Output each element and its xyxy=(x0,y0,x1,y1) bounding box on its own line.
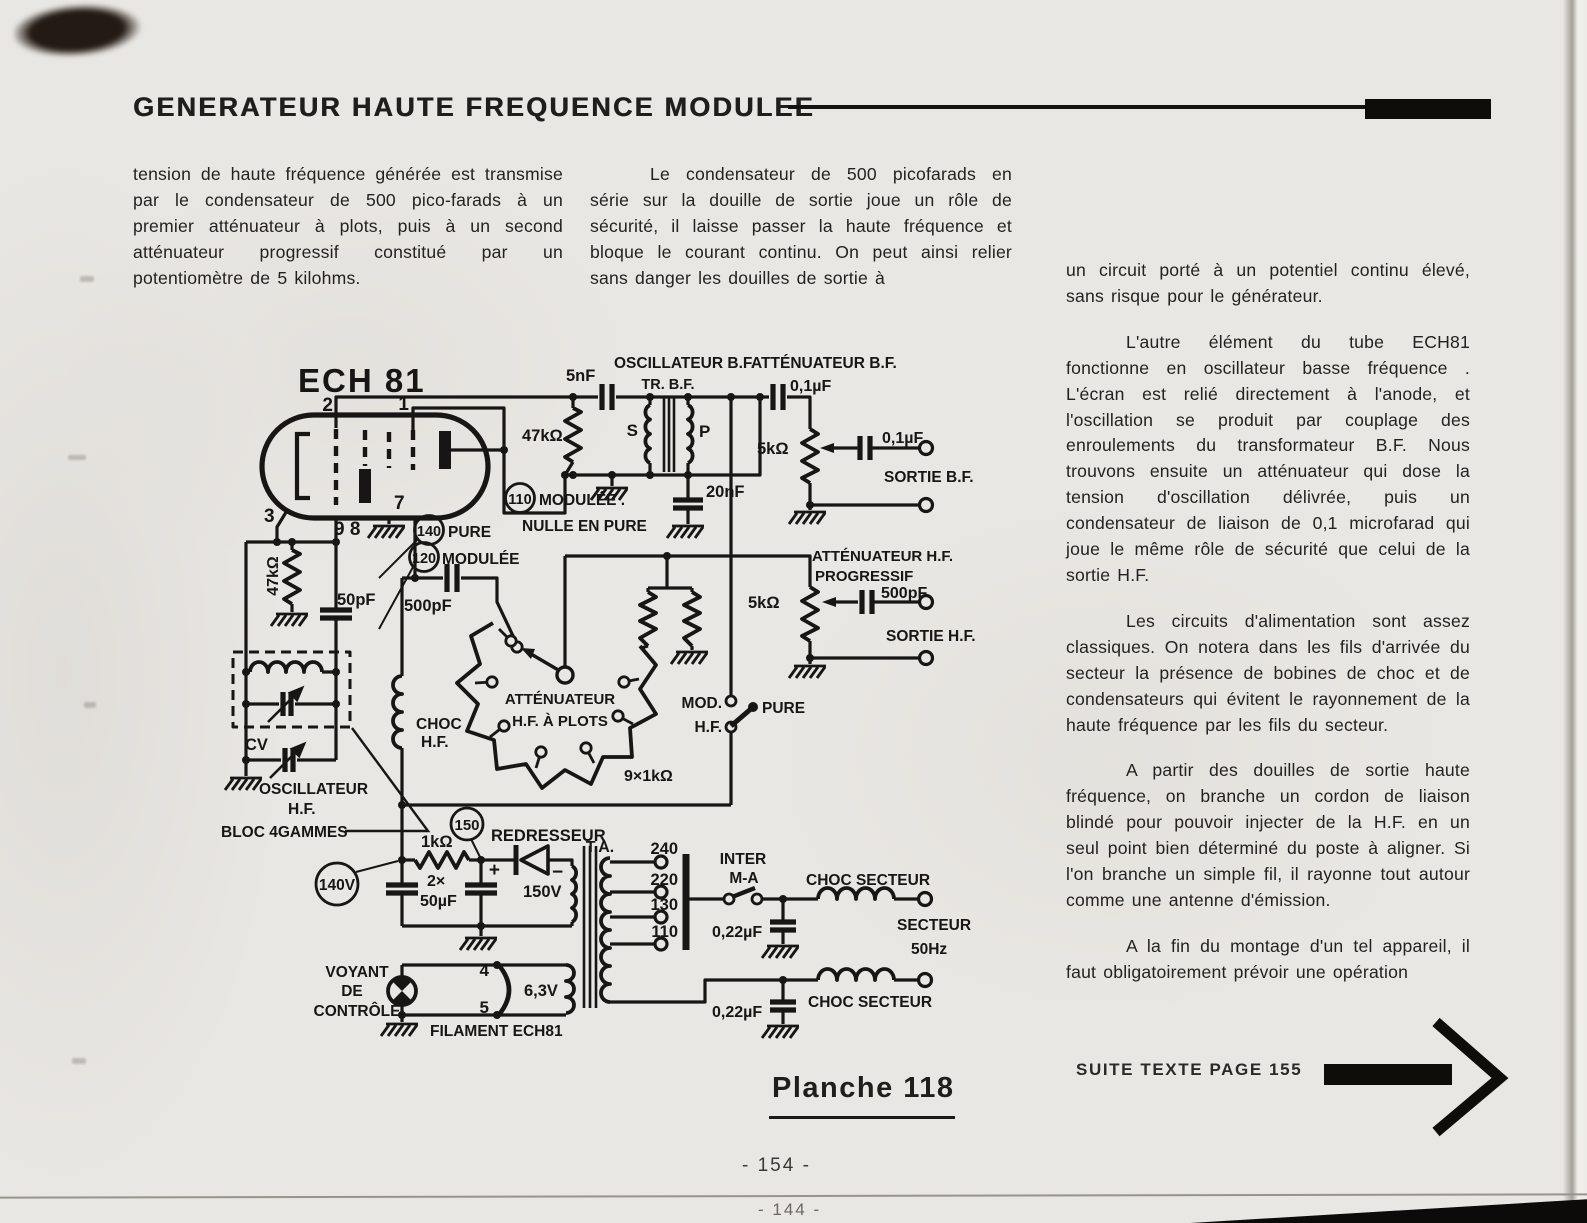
label-500pf-a: 500pF xyxy=(404,597,452,615)
label-osc-bf: OSCILLATEUR B.F. xyxy=(614,355,755,372)
label-pin5: 5 xyxy=(480,998,489,1017)
rectifier-diode xyxy=(521,846,548,874)
label-att-plots-1: ATTÉNUATEUR xyxy=(505,691,615,708)
filament-bracket xyxy=(497,963,509,1017)
label-pure: PURE xyxy=(762,700,805,717)
page-number: - 154 - xyxy=(742,1155,811,1177)
label-50pf: 50pF xyxy=(337,591,376,609)
label-sortie-bf: SORTIE B.F. xyxy=(884,469,974,486)
label-tap-110: 110 xyxy=(651,923,678,941)
label-140v: 140V xyxy=(319,877,356,894)
scanned-magazine-page: GENERATEUR HAUTE FREQUENCE MODULEE tensi… xyxy=(0,0,1587,1223)
mod-pure-switch xyxy=(726,696,758,732)
label-ma: M-A xyxy=(729,870,758,887)
resistor-47k-bf xyxy=(565,408,581,462)
figure-caption: Planche 118 xyxy=(772,1072,955,1105)
label-500pf-b: 500pF xyxy=(881,585,927,602)
choke-mains-2 xyxy=(818,969,894,980)
label-110a: MODULÉE . xyxy=(539,492,625,509)
label-tap-240: 240 xyxy=(650,840,678,858)
label-5k-hf: 5kΩ xyxy=(748,594,780,612)
label-pin98: 9 8 xyxy=(334,519,360,540)
label-att-hf-2: PROGRESSIF xyxy=(815,568,913,585)
tube-ech81 xyxy=(262,415,488,518)
caption-underline xyxy=(769,1116,955,1119)
label-9x1k: 9×1kΩ xyxy=(624,768,673,785)
label-150v: 150V xyxy=(523,883,562,901)
label-1k: 1kΩ xyxy=(421,833,453,851)
transformer-bf-primary xyxy=(688,405,693,463)
label-inter: INTER xyxy=(720,851,767,868)
page-number-overleaf: - 144 - xyxy=(758,1200,821,1220)
bf-pot-arrow xyxy=(820,443,834,453)
choke-hf xyxy=(393,676,402,748)
transformer-mains-winding xyxy=(601,858,610,1002)
transformer-6v3-winding xyxy=(566,965,574,1013)
label-pin2: 2 xyxy=(322,395,333,416)
label-trbf: TR. B.F. xyxy=(641,377,694,393)
label-2x: 2× xyxy=(427,873,445,890)
pilot-lamp xyxy=(388,975,416,1006)
label-choc-secteur-2: CHOC SECTEUR xyxy=(808,994,932,1011)
label-osc-hf-2: H.F. xyxy=(288,801,316,818)
label-110b: NULLE EN PURE xyxy=(522,518,647,535)
label-plus: + xyxy=(489,860,500,881)
label-022uf-a: 0,22µF xyxy=(712,924,762,941)
screen-electrode xyxy=(359,469,371,503)
label-voyant-3: CONTRÔLE xyxy=(314,1002,401,1020)
label-47k-bf: 47kΩ xyxy=(522,427,563,445)
label-tap-130: 130 xyxy=(650,896,678,914)
cathode xyxy=(297,434,310,498)
label-filament: FILAMENT ECH81 xyxy=(430,1023,563,1040)
label-mod: MOD. xyxy=(682,695,722,712)
label-att-hf-1: ATTÉNUATEUR H.F. xyxy=(812,548,953,565)
label-120: 120 xyxy=(412,551,436,567)
label-hf-switch: H.F. xyxy=(694,719,722,736)
label-5nf: 5nF xyxy=(566,367,595,385)
label-20nf: 20nF xyxy=(706,483,745,501)
label-att-plots-2: H.F. À PLOTS xyxy=(512,713,608,730)
wiper-arrowhead xyxy=(521,648,535,659)
label-022uf-b: 0,22µF xyxy=(712,1004,762,1021)
label-sortie-hf: SORTIE H.F. xyxy=(886,628,976,645)
label-6v3: 6,3V xyxy=(524,982,558,1000)
potentiometer-5k-hf xyxy=(802,587,818,641)
label-att-bf: ATTÉNUATEUR B.F. xyxy=(751,355,897,372)
continuation-arrow-icon xyxy=(1320,1012,1515,1142)
oscillator-coil xyxy=(250,662,322,672)
resistor-b xyxy=(684,592,700,646)
hf-pot-arrow xyxy=(822,597,836,607)
label-pin7: 7 xyxy=(394,493,405,514)
label-150: 150 xyxy=(454,817,479,834)
label-01uf-a: 0,1µF xyxy=(790,378,831,395)
label-50uf: 50µF xyxy=(420,893,457,910)
label-voyant-1: VOYANT xyxy=(325,964,389,981)
label-osc-hf-1: OSCILLATEUR xyxy=(259,781,368,798)
anode-plate xyxy=(439,431,451,469)
transformer-bf-secondary xyxy=(645,405,650,463)
choke-mains-1 xyxy=(818,888,894,899)
label-p-winding: P xyxy=(699,422,710,441)
transformer-hv-winding xyxy=(572,866,576,922)
label-cv: CV xyxy=(245,736,268,754)
resistor-47k-grid xyxy=(284,550,300,604)
label-120t: MODULÉE xyxy=(442,551,520,568)
label-choc-secteur-1: CHOC SECTEUR xyxy=(806,872,930,889)
label-140: 140 xyxy=(417,524,441,540)
continuation-note: SUITE TEXTE PAGE 155 xyxy=(1076,1060,1302,1080)
label-voyant-2: DE xyxy=(341,983,363,1000)
label-minus: − xyxy=(552,862,563,883)
label-s-winding: S xyxy=(627,421,638,440)
potentiometer-5k-bf xyxy=(802,429,818,483)
label-pin3: 3 xyxy=(264,506,275,527)
label-140t: PURE xyxy=(448,524,491,541)
mains-switch xyxy=(724,888,762,904)
label-pin1: 1 xyxy=(398,394,409,415)
label-5k-bf: 5kΩ xyxy=(757,440,789,458)
label-ta: T.A. xyxy=(586,839,614,856)
label-tap-220: 220 xyxy=(650,871,678,889)
label-47k-grid: 47kΩ xyxy=(265,556,282,596)
label-secteur: SECTEUR xyxy=(897,917,971,934)
label-50hz: 50Hz xyxy=(911,941,947,958)
resistor-1k xyxy=(415,852,469,868)
label-choc-hf-1: CHOC xyxy=(416,716,462,733)
label-pin4: 4 xyxy=(480,961,490,980)
label-01uf-b: 0,1µF xyxy=(882,430,923,447)
label-110: 110 xyxy=(508,492,531,508)
label-choc-hf-2: H.F. xyxy=(421,734,449,751)
label-bloc: BLOC 4GAMMES xyxy=(221,824,348,841)
resistor-a xyxy=(640,592,656,646)
